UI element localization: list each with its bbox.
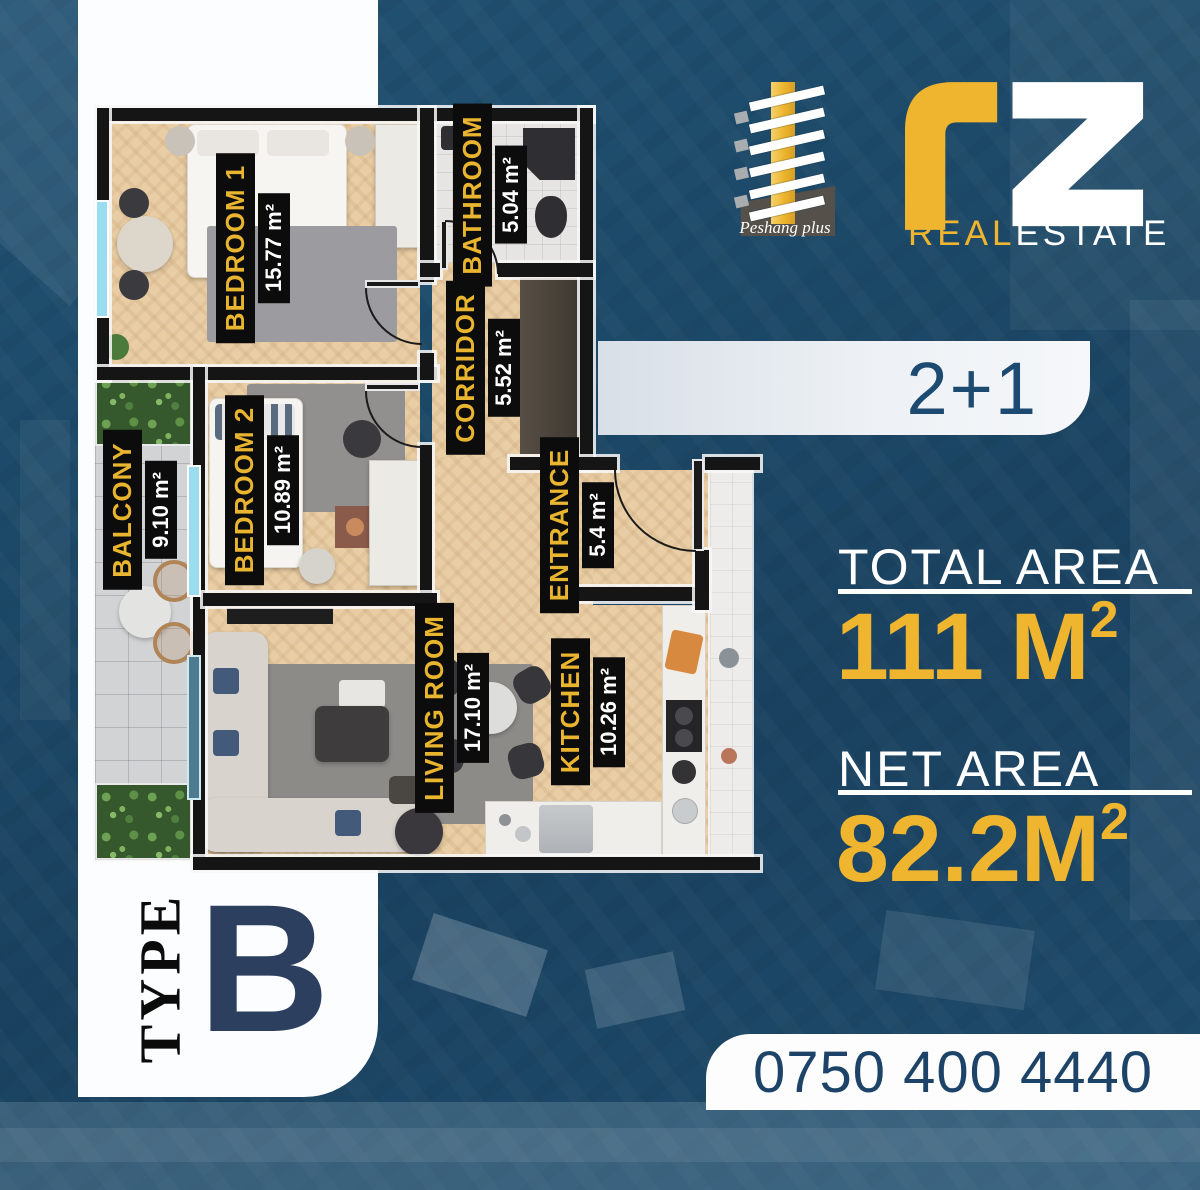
unit-type-badge-label: 2+1 bbox=[906, 346, 1038, 431]
side-table-icon bbox=[339, 680, 385, 708]
balcony-planter-icon bbox=[97, 785, 191, 858]
toilet-icon bbox=[535, 196, 567, 238]
room-name: CORRIDOR bbox=[446, 281, 485, 455]
armchair-icon bbox=[395, 808, 443, 856]
door-leaf-icon bbox=[365, 383, 420, 391]
door-leaf-icon bbox=[365, 280, 420, 288]
type-label: TYPE bbox=[127, 893, 194, 1064]
room-label-living-room: LIVING ROOM 17.10 m² bbox=[415, 603, 489, 813]
total-area-sup: 2 bbox=[1090, 594, 1119, 646]
window-icon bbox=[95, 200, 109, 318]
room-area: 15.77 m² bbox=[258, 193, 290, 303]
background-road-line bbox=[0, 1128, 1200, 1162]
sofa-cushion-icon bbox=[213, 730, 239, 756]
wall bbox=[203, 593, 437, 606]
wall bbox=[420, 108, 434, 282]
net-area-number: 82.2M bbox=[836, 802, 1100, 897]
rz-logo-icon bbox=[905, 80, 1145, 232]
nightstand-icon bbox=[165, 126, 195, 156]
sofa-icon bbox=[202, 798, 428, 852]
dishwasher-icon bbox=[539, 805, 593, 853]
bedroom1-chair-icon bbox=[119, 270, 149, 300]
phone-number: 0750 400 4440 bbox=[753, 1039, 1153, 1106]
room-name: BEDROOM 1 bbox=[216, 153, 255, 343]
kitchen-sink-icon bbox=[672, 798, 698, 824]
total-area-number: 111 M bbox=[836, 600, 1090, 695]
wall bbox=[695, 550, 709, 610]
room-name: BEDROOM 2 bbox=[225, 395, 264, 585]
net-area-sup: 2 bbox=[1100, 796, 1129, 848]
bedroom2-chair-icon bbox=[343, 420, 381, 458]
wall bbox=[97, 367, 437, 380]
burner-icon bbox=[675, 707, 693, 725]
decor-icon bbox=[721, 748, 737, 764]
room-label-entrance: ENTRANCE 5.4 m² bbox=[540, 437, 614, 613]
room-name: ENTRANCE bbox=[540, 437, 579, 613]
burner-icon bbox=[675, 729, 693, 747]
room-area: 5.04 m² bbox=[495, 146, 527, 244]
room-label-corridor: CORRIDOR 5.52 m² bbox=[446, 281, 520, 455]
wall bbox=[420, 263, 440, 277]
decor-icon bbox=[719, 648, 739, 668]
sink-bowl-icon bbox=[515, 826, 531, 842]
total-area-label: TOTAL AREA bbox=[838, 538, 1160, 596]
total-area-value: 111 M 2 bbox=[836, 600, 1118, 695]
wall bbox=[580, 108, 593, 470]
rz-logo-wordmark: REAL ESTATE bbox=[908, 214, 1140, 254]
room-area: 9.10 m² bbox=[145, 461, 177, 559]
rz-real-text: REAL bbox=[908, 214, 1015, 254]
sink-tap-icon bbox=[499, 814, 511, 826]
pot-icon bbox=[672, 760, 696, 784]
bedroom2-closet-icon bbox=[369, 460, 423, 586]
bedroom2-table-icon bbox=[299, 548, 335, 584]
room-label-balcony: BALCONY 9.10 m² bbox=[103, 430, 177, 590]
type-value: B bbox=[198, 863, 329, 1073]
sofa-cushion-icon bbox=[213, 668, 239, 694]
sliding-door-icon bbox=[187, 655, 201, 800]
tv-icon bbox=[227, 608, 333, 624]
room-name: LIVING ROOM bbox=[415, 603, 454, 813]
room-area: 17.10 m² bbox=[457, 653, 489, 763]
room-label-kitchen: KITCHEN 10.26 m² bbox=[551, 639, 625, 786]
wall bbox=[420, 353, 434, 380]
bedroom1-table-icon bbox=[117, 216, 173, 272]
flyer-canvas: 2+1 Peshang plus REAL ESTATE TOTAL AREA … bbox=[0, 0, 1200, 1190]
room-label-bedroom1: BEDROOM 1 15.77 m² bbox=[216, 153, 290, 343]
net-area-underline bbox=[838, 790, 1192, 795]
room-label-bathroom: BATHROOM 5.04 m² bbox=[453, 103, 527, 286]
background-block bbox=[1130, 300, 1200, 920]
sliding-door-icon bbox=[187, 465, 201, 597]
room-label-bedroom2: BEDROOM 2 10.89 m² bbox=[225, 395, 299, 585]
room-area: 10.26 m² bbox=[593, 657, 625, 767]
coffee-table-icon bbox=[315, 706, 389, 762]
wall bbox=[420, 445, 432, 605]
room-name: BATHROOM bbox=[453, 103, 492, 286]
stove-icon bbox=[666, 700, 702, 752]
room-area: 10.89 m² bbox=[267, 435, 299, 545]
nightstand-icon bbox=[345, 126, 375, 156]
wall bbox=[193, 857, 760, 870]
rz-estate-text: ESTATE bbox=[1015, 214, 1170, 254]
background-block bbox=[20, 420, 70, 720]
phone-band: 0750 400 4440 bbox=[706, 1034, 1200, 1110]
room-name: BALCONY bbox=[103, 430, 142, 590]
net-area-value: 82.2M 2 bbox=[836, 802, 1129, 897]
bedroom1-chair-icon bbox=[119, 188, 149, 218]
room-name: KITCHEN bbox=[551, 639, 590, 786]
corridor-wardrobe-icon bbox=[520, 278, 580, 454]
sofa-cushion-icon bbox=[335, 810, 361, 836]
wall bbox=[705, 457, 760, 470]
room-area: 5.4 m² bbox=[582, 482, 614, 568]
room-area: 5.52 m² bbox=[488, 319, 520, 417]
floor-plan: BEDROOM 1 15.77 m² BATHROOM 5.04 m² CORR… bbox=[95, 108, 760, 870]
